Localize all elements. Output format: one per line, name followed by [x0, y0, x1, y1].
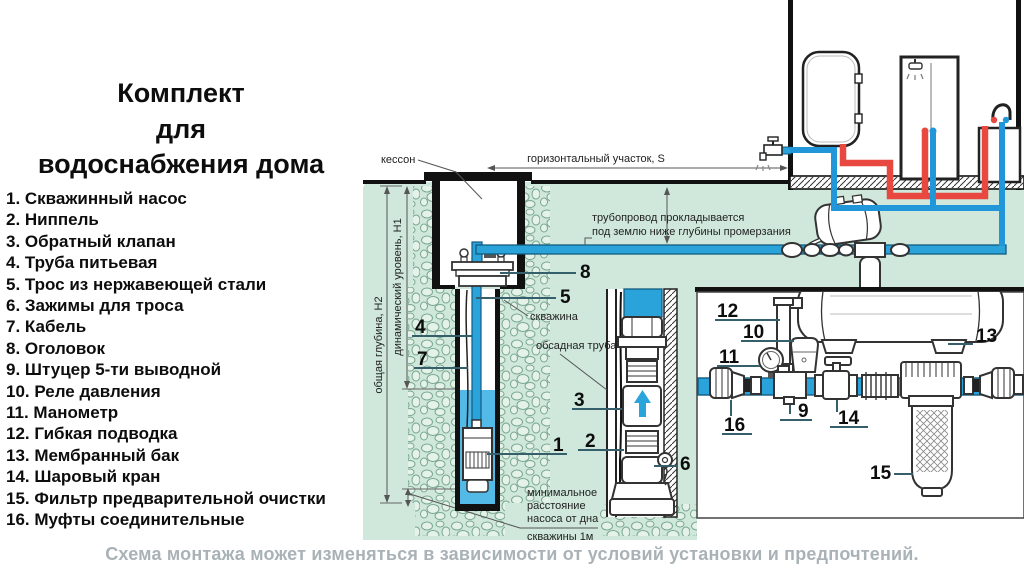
sink-cold-handle — [1003, 117, 1009, 123]
pressure-relay — [791, 338, 818, 372]
marker-10: 10 — [743, 322, 764, 343]
caisson-label: кессон — [381, 154, 415, 166]
shower-cabin — [901, 57, 958, 179]
sink-hot-handle — [991, 117, 997, 123]
part-item: 15. Фильтр предварительной очистки — [6, 488, 366, 509]
part-item: 10. Реле давления — [6, 381, 366, 402]
caisson-lid — [424, 172, 532, 181]
marker-13: 13 — [976, 326, 997, 347]
marker-14: 14 — [838, 408, 860, 429]
marker-4: 4 — [415, 317, 426, 338]
marker-1: 1 — [553, 435, 564, 456]
casing-label: обсадная труба — [536, 340, 617, 352]
infographic: Комплект для водоснабжения дома 1. Скваж… — [0, 0, 1024, 576]
corrugated-coupling — [862, 372, 898, 400]
part-item: 13. Мембранный бак — [6, 445, 366, 466]
diagram: общая глубина, Н2 динамический уровень, … — [360, 0, 1024, 576]
water-heater — [803, 52, 862, 146]
part-item: 6. Зажимы для троса — [6, 295, 366, 316]
part-item: 8. Оголовок — [6, 338, 366, 359]
part-item: 7. Кабель — [6, 316, 366, 337]
pipeline-note-line1: трубопровод прокладывается — [592, 212, 744, 224]
title-line-2: для — [18, 112, 344, 148]
borehole-pump — [463, 420, 492, 492]
title-line-1: Комплект — [18, 76, 344, 112]
check-valve-detail — [623, 386, 661, 426]
dynamic-level-label: динамический уровень, Н1 — [392, 218, 404, 355]
part-item: 16. Муфты соединительные — [6, 509, 366, 530]
pipeline-note-line2: под землю ниже глубины промерзания — [592, 226, 791, 238]
part-item: 9. Штуцер 5-ти выводной — [6, 359, 366, 380]
horizontal-section-dimension: горизонтальный участок, S — [487, 153, 788, 171]
well-shaft — [455, 258, 500, 511]
part-item: 4. Труба питьевая — [6, 252, 366, 273]
garden-tap — [756, 137, 791, 171]
marker-11: 11 — [719, 347, 740, 368]
marker-12: 12 — [717, 301, 738, 322]
ground-line-right — [531, 180, 790, 184]
marker-2: 2 — [585, 431, 596, 452]
main-supply-pipe — [476, 245, 1006, 254]
title-line-3: водоснабжения дома — [18, 147, 344, 183]
pump-detail-view — [606, 289, 678, 517]
page-title: Комплект для водоснабжения дома — [18, 76, 344, 183]
well-label: скважина — [530, 311, 579, 323]
min-distance-line2: расстояние — [527, 500, 586, 512]
footer-caption: Схема монтажа может изменяться в зависим… — [0, 544, 1024, 565]
part-item: 5. Трос из нержавеющей стали — [6, 274, 366, 295]
marker-8: 8 — [580, 262, 591, 283]
marker-7: 7 — [417, 349, 428, 370]
ground-line-left — [363, 180, 426, 184]
part-item: 1. Скважинный насос — [6, 188, 366, 209]
nipple-detail — [627, 361, 657, 382]
house-wall-left — [788, 0, 793, 190]
nipple2-detail — [626, 431, 658, 453]
min-distance-line1: минимальное — [527, 487, 597, 499]
marker-16: 16 — [724, 415, 745, 436]
house — [788, 0, 1024, 190]
min-distance-line3: насоса от дна — [527, 513, 599, 525]
cable-detail — [620, 292, 621, 500]
shower-hot-valve — [922, 128, 929, 135]
part-item: 11. Манометр — [6, 402, 366, 423]
five-way-fitting — [774, 366, 806, 404]
min-distance-line4: скважины 1м — [527, 531, 593, 543]
marker-9: 9 — [798, 401, 809, 422]
total-depth-label: общая глубина, Н2 — [373, 296, 385, 393]
part-item: 3. Обратный клапан — [6, 231, 366, 252]
marker-5: 5 — [560, 287, 571, 308]
shower-cold-valve — [930, 128, 937, 135]
marker-15: 15 — [870, 463, 892, 484]
part-item: 12. Гибкая подводка — [6, 423, 366, 444]
marker-3: 3 — [574, 390, 585, 411]
horizontal-section-label: горизонтальный участок, S — [527, 153, 665, 165]
marker-6: 6 — [680, 454, 691, 475]
part-item: 2. Ниппель — [6, 209, 366, 230]
part-item: 14. Шаровый кран — [6, 466, 366, 487]
parts-list: 1. Скважинный насос 2. Ниппель 3. Обратн… — [6, 188, 366, 531]
